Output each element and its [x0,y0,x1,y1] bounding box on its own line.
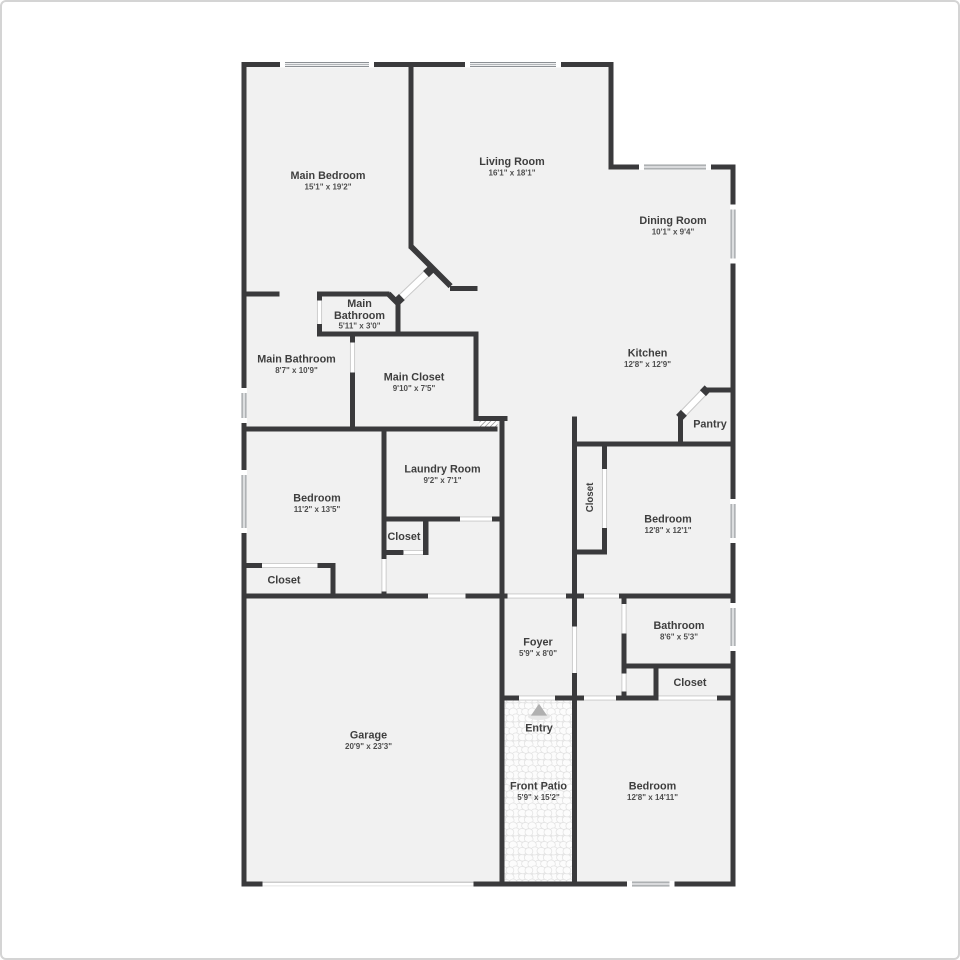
svg-text:Bedroom: Bedroom [644,513,691,525]
svg-text:Entry: Entry [525,722,553,734]
svg-text:5'9" x 8'0": 5'9" x 8'0" [519,649,557,658]
svg-text:Bathroom: Bathroom [334,310,385,322]
svg-text:Dining Room: Dining Room [639,215,706,227]
svg-text:16'1" x 18'1": 16'1" x 18'1" [489,169,536,178]
svg-text:15'1" x 19'2": 15'1" x 19'2" [305,183,352,192]
svg-text:12'8" x 12'1": 12'8" x 12'1" [645,526,692,535]
svg-text:Main Closet: Main Closet [384,371,445,383]
svg-text:Main Bathroom: Main Bathroom [257,353,336,365]
svg-text:10'1" x 9'4": 10'1" x 9'4" [652,228,695,237]
svg-text:Main: Main [347,298,372,310]
svg-text:5'9" x 15'2": 5'9" x 15'2" [517,793,560,802]
svg-text:9'2" x 7'1": 9'2" x 7'1" [423,476,461,485]
svg-text:Living Room: Living Room [479,156,544,168]
svg-text:Front Patio: Front Patio [510,780,567,792]
svg-text:9'10" x 7'5": 9'10" x 7'5" [393,384,436,393]
svg-text:11'2" x 13'5": 11'2" x 13'5" [294,505,341,514]
svg-text:Bedroom: Bedroom [293,492,340,504]
svg-text:Garage: Garage [350,729,387,741]
svg-text:8'6" x 5'3": 8'6" x 5'3" [660,633,698,642]
svg-text:Closet: Closet [268,574,301,586]
svg-text:Closet: Closet [388,531,421,543]
svg-text:Kitchen: Kitchen [628,347,668,359]
svg-text:12'8" x 14'11": 12'8" x 14'11" [627,793,678,802]
svg-text:Pantry: Pantry [693,418,727,430]
svg-text:Foyer: Foyer [523,636,553,648]
svg-text:12'8" x 12'9": 12'8" x 12'9" [624,360,671,369]
svg-text:Laundry Room: Laundry Room [404,463,480,475]
svg-text:Bathroom: Bathroom [654,620,705,632]
svg-text:20'9" x 23'3": 20'9" x 23'3" [345,742,392,751]
svg-text:Bedroom: Bedroom [629,780,676,792]
svg-text:5'11" x 3'0": 5'11" x 3'0" [338,322,380,331]
svg-text:Main Bedroom: Main Bedroom [291,170,366,182]
svg-text:Closet: Closet [585,482,596,512]
svg-text:Closet: Closet [674,677,707,689]
svg-text:8'7" x 10'9": 8'7" x 10'9" [275,366,318,375]
